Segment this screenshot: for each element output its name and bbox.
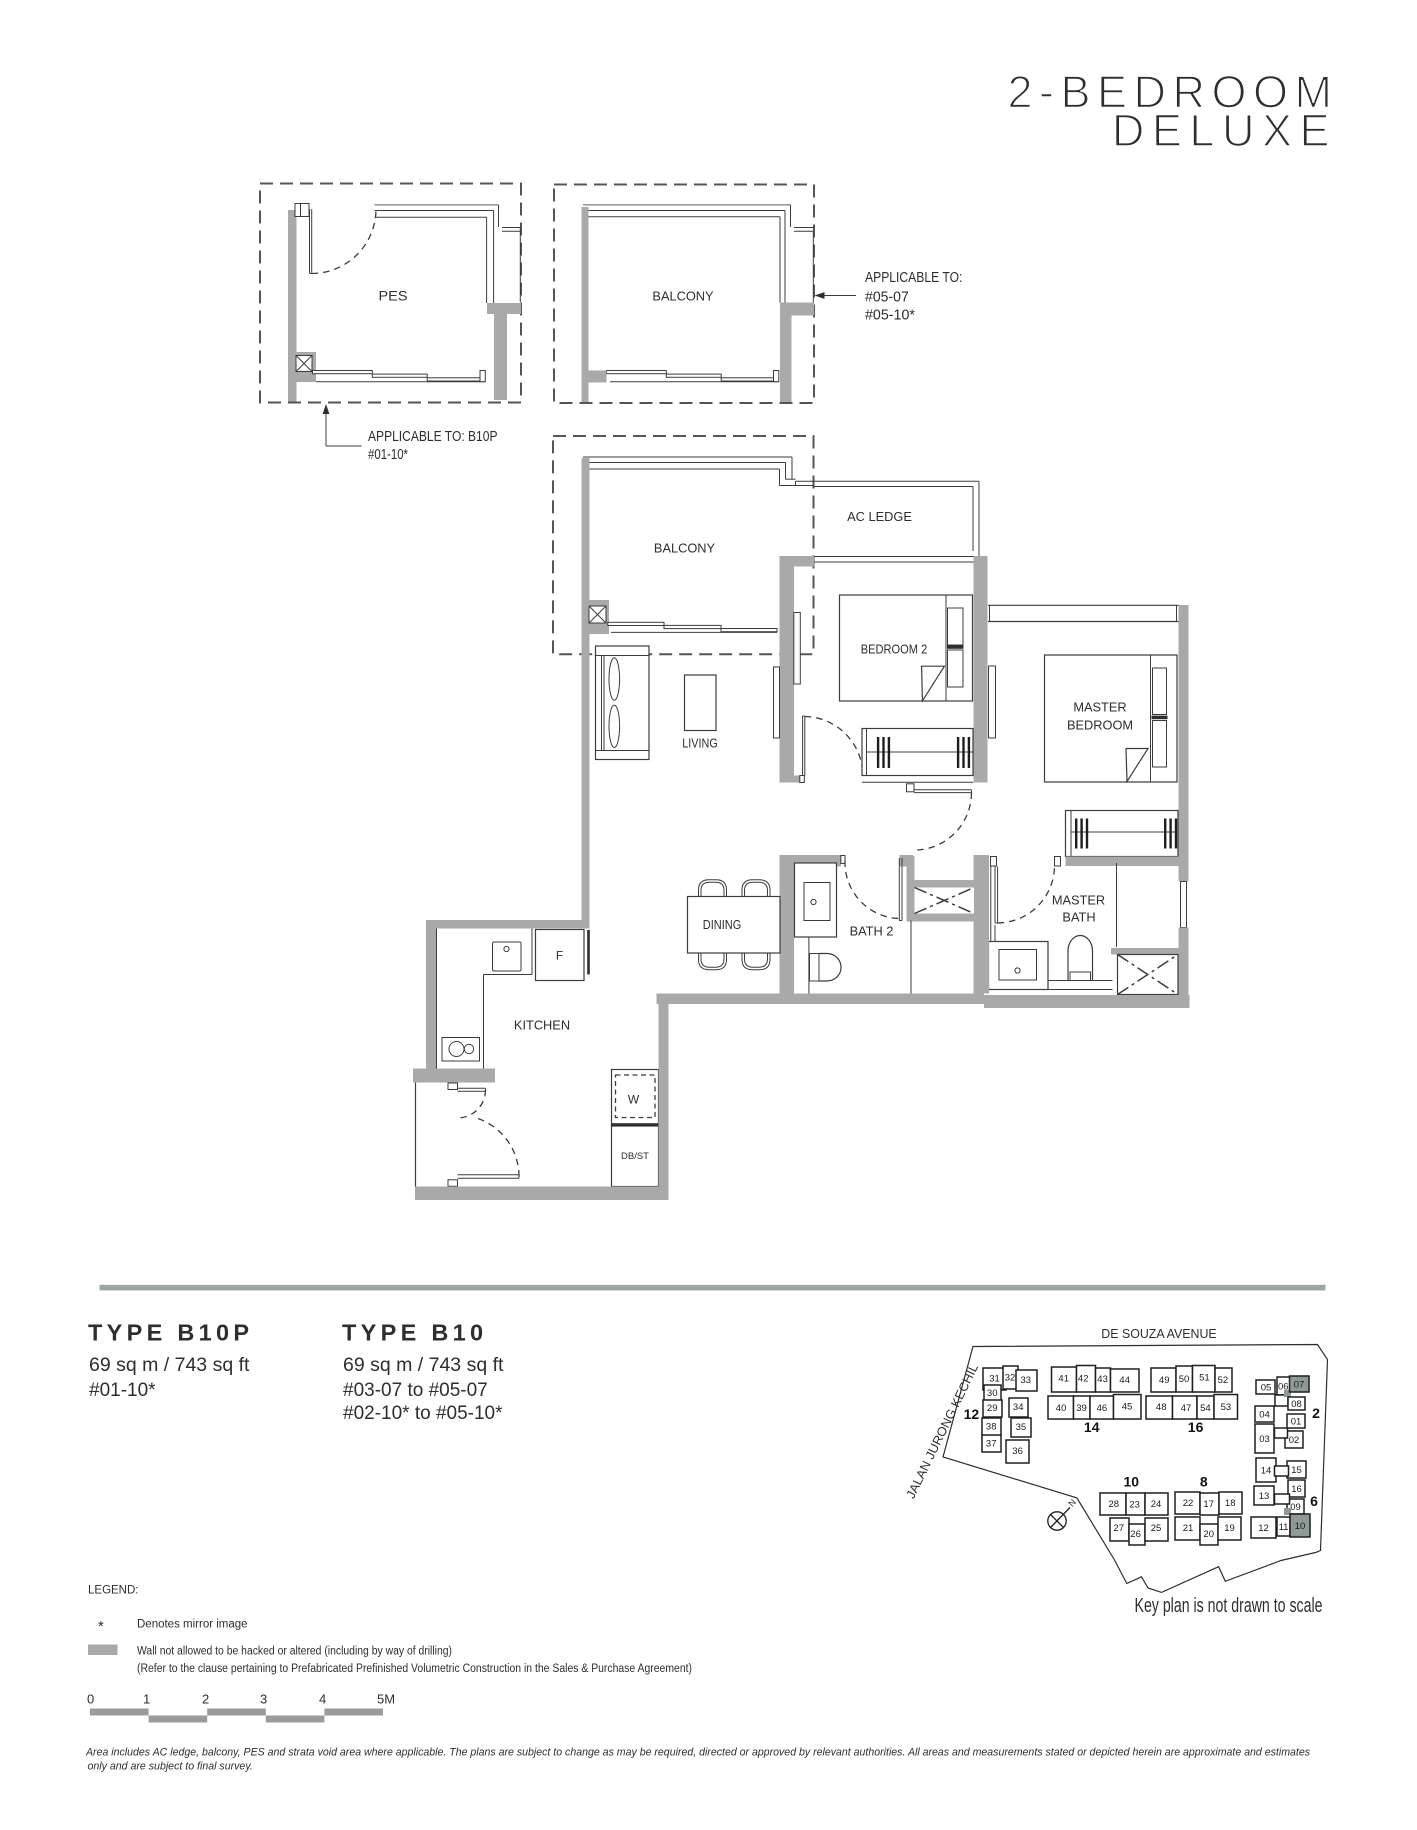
svg-text:09: 09 [1290, 1502, 1301, 1513]
svg-text:AC LEDGE: AC LEDGE [847, 509, 912, 524]
svg-text:(Refer to the clause pertainin: (Refer to the clause pertaining to Prefa… [137, 1663, 692, 1675]
svg-text:0: 0 [87, 1692, 94, 1707]
svg-text:30: 30 [987, 1388, 998, 1399]
svg-text:BEDROOM: BEDROOM [1067, 717, 1133, 732]
svg-text:12: 12 [964, 1406, 980, 1422]
svg-text:BALCONY: BALCONY [652, 289, 714, 304]
svg-text:33: 33 [1021, 1375, 1032, 1386]
svg-text:#01-10*: #01-10* [89, 1380, 156, 1401]
svg-text:40: 40 [1056, 1403, 1067, 1414]
svg-text:MASTER: MASTER [1052, 892, 1105, 907]
svg-text:37: 37 [986, 1439, 997, 1450]
svg-text:35: 35 [1016, 1422, 1027, 1433]
svg-text:5M: 5M [377, 1692, 395, 1707]
svg-text:22: 22 [1183, 1498, 1194, 1509]
svg-text:11: 11 [1279, 1522, 1289, 1533]
svg-text:41: 41 [1058, 1374, 1069, 1385]
svg-text:DINING: DINING [703, 917, 742, 932]
svg-text:51: 51 [1199, 1373, 1210, 1384]
svg-text:1: 1 [143, 1692, 150, 1707]
svg-text:#05-07: #05-07 [865, 290, 909, 306]
svg-text:06: 06 [1278, 1381, 1289, 1392]
svg-text:50: 50 [1179, 1374, 1190, 1385]
svg-text:36: 36 [1012, 1446, 1023, 1457]
svg-text:only and are subject to final: only and are subject to final survey. [88, 1761, 253, 1773]
svg-text:47: 47 [1181, 1403, 1192, 1414]
svg-text:23: 23 [1129, 1500, 1140, 1511]
svg-text:32: 32 [1005, 1373, 1016, 1384]
svg-text:MASTER: MASTER [1073, 699, 1126, 714]
svg-text:20: 20 [1203, 1529, 1214, 1540]
svg-text:19: 19 [1224, 1523, 1235, 1534]
svg-text:3: 3 [260, 1692, 267, 1707]
svg-text:DB/ST: DB/ST [621, 1151, 649, 1162]
svg-text:21: 21 [1183, 1523, 1194, 1534]
svg-text:APPLICABLE TO: B10P: APPLICABLE TO: B10P [368, 429, 498, 445]
svg-text:LEGEND:: LEGEND: [88, 1585, 139, 1597]
svg-text:6: 6 [1310, 1493, 1318, 1509]
svg-text:BATH 2: BATH 2 [850, 923, 894, 938]
svg-text:DELUXE: DELUXE [1112, 105, 1337, 156]
svg-text:31: 31 [989, 1374, 1000, 1385]
svg-text:KITCHEN: KITCHEN [514, 1017, 570, 1032]
svg-text:10: 10 [1124, 1473, 1140, 1489]
svg-text:43: 43 [1097, 1374, 1108, 1385]
svg-text:15: 15 [1291, 1465, 1302, 1476]
svg-text:*: * [98, 1618, 104, 1635]
svg-text:W: W [628, 1093, 640, 1107]
svg-text:45: 45 [1122, 1402, 1133, 1413]
svg-text:F: F [556, 949, 563, 963]
svg-text:BALCONY: BALCONY [654, 540, 716, 555]
svg-text:46: 46 [1097, 1403, 1108, 1414]
svg-text:8: 8 [1200, 1473, 1208, 1489]
svg-text:TYPE B10: TYPE B10 [342, 1320, 487, 1346]
svg-text:25: 25 [1151, 1523, 1162, 1534]
svg-text:27: 27 [1113, 1523, 1124, 1534]
svg-text:Denotes mirror image: Denotes mirror image [137, 1619, 248, 1631]
svg-text:24: 24 [1151, 1499, 1162, 1510]
svg-text:2: 2 [202, 1692, 209, 1707]
svg-text:Key plan is not drawn to scale: Key plan is not drawn to scale [1135, 1595, 1323, 1617]
svg-text:4: 4 [319, 1692, 326, 1707]
svg-text:BEDROOM 2: BEDROOM 2 [861, 641, 928, 656]
svg-text:LIVING: LIVING [682, 736, 718, 751]
svg-text:07: 07 [1294, 1379, 1305, 1390]
svg-text:#03-07 to #05-07: #03-07 to #05-07 [343, 1380, 488, 1401]
svg-text:53: 53 [1221, 1402, 1232, 1413]
svg-text:2: 2 [1312, 1405, 1320, 1421]
svg-text:PES: PES [379, 289, 408, 304]
svg-text:34: 34 [1013, 1402, 1024, 1413]
svg-text:01: 01 [1291, 1416, 1302, 1427]
svg-text:39: 39 [1076, 1403, 1087, 1414]
svg-text:44: 44 [1119, 1375, 1130, 1386]
svg-text:12: 12 [1258, 1523, 1269, 1534]
svg-text:69 sq m / 743 sq ft: 69 sq m / 743 sq ft [89, 1354, 250, 1376]
svg-text:DE SOUZA AVENUE: DE SOUZA AVENUE [1101, 1327, 1216, 1341]
svg-text:18: 18 [1225, 1498, 1236, 1509]
svg-text:08: 08 [1291, 1399, 1302, 1410]
svg-text:49: 49 [1159, 1375, 1170, 1386]
svg-text:54: 54 [1200, 1403, 1211, 1414]
svg-text:26: 26 [1130, 1529, 1141, 1540]
svg-text:BATH: BATH [1062, 909, 1095, 924]
svg-text:Area includes AC ledge, balcon: Area includes AC ledge, balcony, PES and… [85, 1747, 1311, 1759]
svg-text:APPLICABLE TO:: APPLICABLE TO: [865, 270, 962, 286]
svg-text:TYPE B10P: TYPE B10P [88, 1320, 253, 1346]
svg-text:Wall not allowed to be hacked: Wall not allowed to be hacked or altered… [137, 1646, 452, 1658]
svg-text:16: 16 [1291, 1484, 1302, 1495]
svg-text:42: 42 [1078, 1374, 1089, 1385]
svg-text:29: 29 [987, 1403, 998, 1414]
svg-text:14: 14 [1084, 1419, 1100, 1435]
svg-text:16: 16 [1188, 1419, 1204, 1435]
svg-text:03: 03 [1259, 1434, 1270, 1445]
svg-text:05: 05 [1261, 1382, 1272, 1393]
svg-text:14: 14 [1261, 1466, 1272, 1477]
svg-text:28: 28 [1109, 1499, 1120, 1510]
svg-text:04: 04 [1259, 1410, 1270, 1421]
svg-text:#02-10* to #05-10*: #02-10* to #05-10* [343, 1403, 503, 1424]
svg-text:48: 48 [1156, 1402, 1167, 1413]
svg-text:02: 02 [1289, 1435, 1300, 1446]
svg-text:69 sq m / 743 sq ft: 69 sq m / 743 sq ft [343, 1354, 504, 1376]
svg-text:#01-10*: #01-10* [368, 447, 408, 463]
svg-text:13: 13 [1259, 1491, 1270, 1502]
svg-text:#05-10*: #05-10* [865, 308, 915, 324]
svg-text:38: 38 [986, 1421, 997, 1432]
svg-text:17: 17 [1203, 1499, 1214, 1510]
svg-text:52: 52 [1218, 1375, 1229, 1386]
svg-text:10: 10 [1295, 1521, 1306, 1532]
